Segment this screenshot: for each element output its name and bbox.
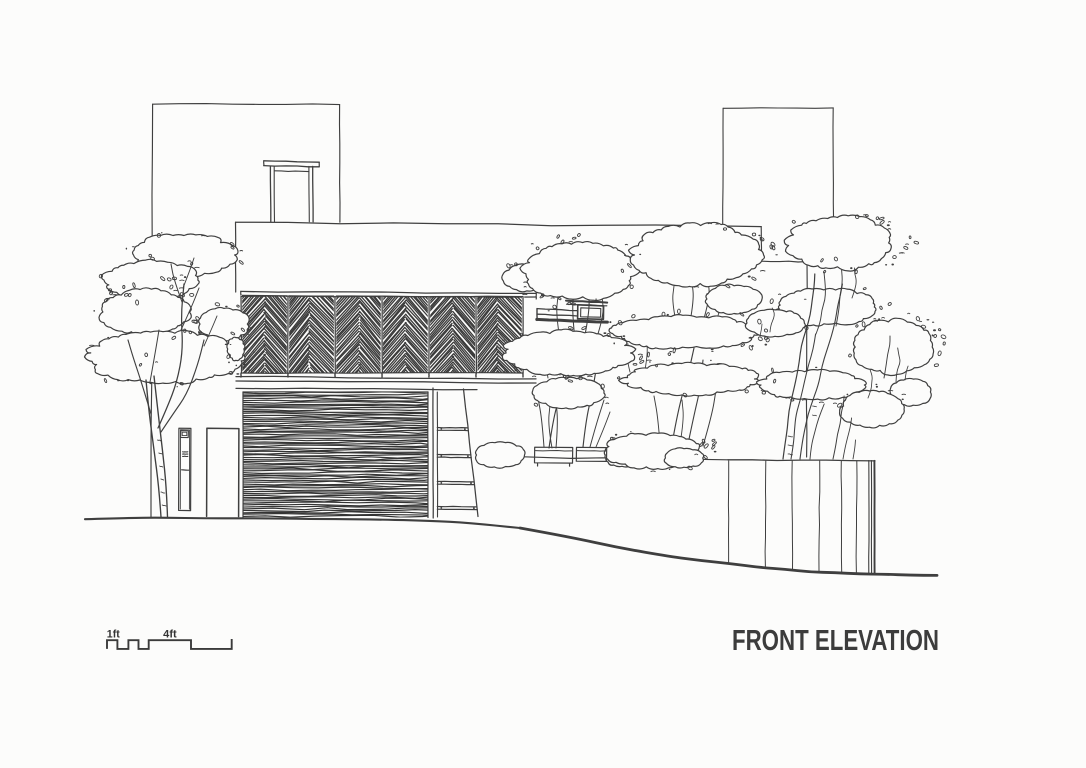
svg-text:4ft: 4ft xyxy=(163,628,177,640)
svg-text:1ft: 1ft xyxy=(107,628,120,640)
svg-text:FRONT ELEVATION: FRONT ELEVATION xyxy=(732,625,939,657)
